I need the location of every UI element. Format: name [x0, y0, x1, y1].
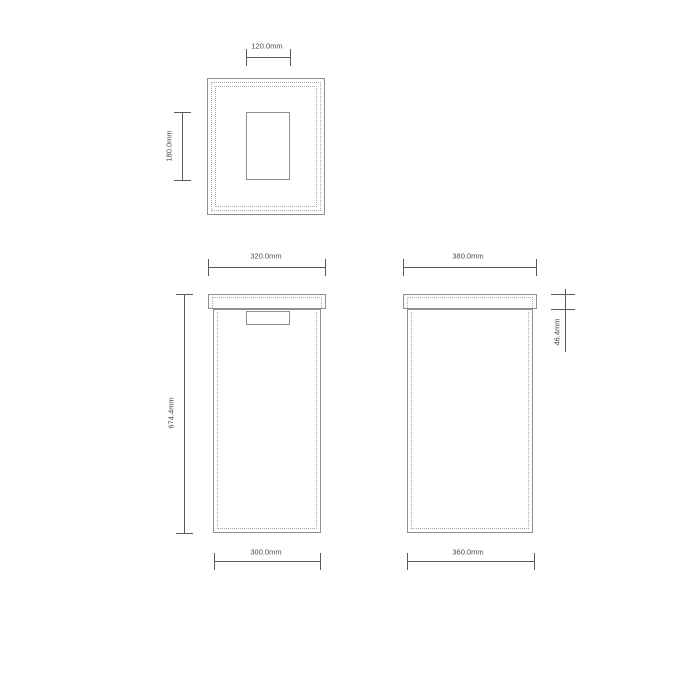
- dim-tick: [176, 533, 193, 534]
- dim-line: [403, 267, 537, 268]
- front-view-lid-hidden-edges: [212, 297, 322, 308]
- top-view-slot: [246, 112, 290, 180]
- dim-tick: [536, 259, 537, 276]
- side-view-body-hidden-edges: [411, 312, 529, 529]
- dim-line: [182, 112, 183, 180]
- dim-label-lid-height: 46.4mm: [553, 318, 561, 345]
- dim-label-lid-depth: 380.0mm: [452, 252, 483, 260]
- dim-tick: [403, 259, 404, 276]
- dim-tick: [551, 309, 575, 310]
- dim-label-lid-width: 320.0mm: [250, 252, 281, 260]
- dim-tick: [176, 294, 193, 295]
- dim-tick: [534, 553, 535, 570]
- dim-label-slot-depth: 180.0mm: [165, 130, 173, 161]
- dim-tick: [208, 259, 209, 276]
- dim-tick: [325, 259, 326, 276]
- dim-label-slot-width: 120.0mm: [251, 42, 282, 50]
- dim-tick: [246, 49, 247, 66]
- technical-drawing-canvas: 120.0mm 180.0mm 320.0mm 674.4mm: [0, 0, 700, 700]
- dim-line: [565, 289, 566, 352]
- front-view-handle-slot: [246, 311, 290, 325]
- dim-tick: [174, 112, 191, 113]
- dim-tick: [407, 553, 408, 570]
- front-view-body-hidden-edges: [217, 312, 317, 529]
- dim-tick: [290, 49, 291, 66]
- dim-line: [407, 561, 534, 562]
- dim-label-overall-height: 674.4mm: [167, 397, 175, 428]
- side-view-lid-hidden-edges: [407, 297, 533, 308]
- dim-label-body-depth: 360.0mm: [452, 548, 483, 556]
- dim-line: [208, 267, 326, 268]
- dim-label-body-width: 300.0mm: [250, 548, 281, 556]
- dim-line: [214, 561, 320, 562]
- dim-tick: [320, 553, 321, 570]
- dim-line: [184, 294, 185, 533]
- dim-line: [246, 57, 290, 58]
- dim-tick: [551, 294, 575, 295]
- dim-tick: [214, 553, 215, 570]
- dim-tick: [174, 180, 191, 181]
